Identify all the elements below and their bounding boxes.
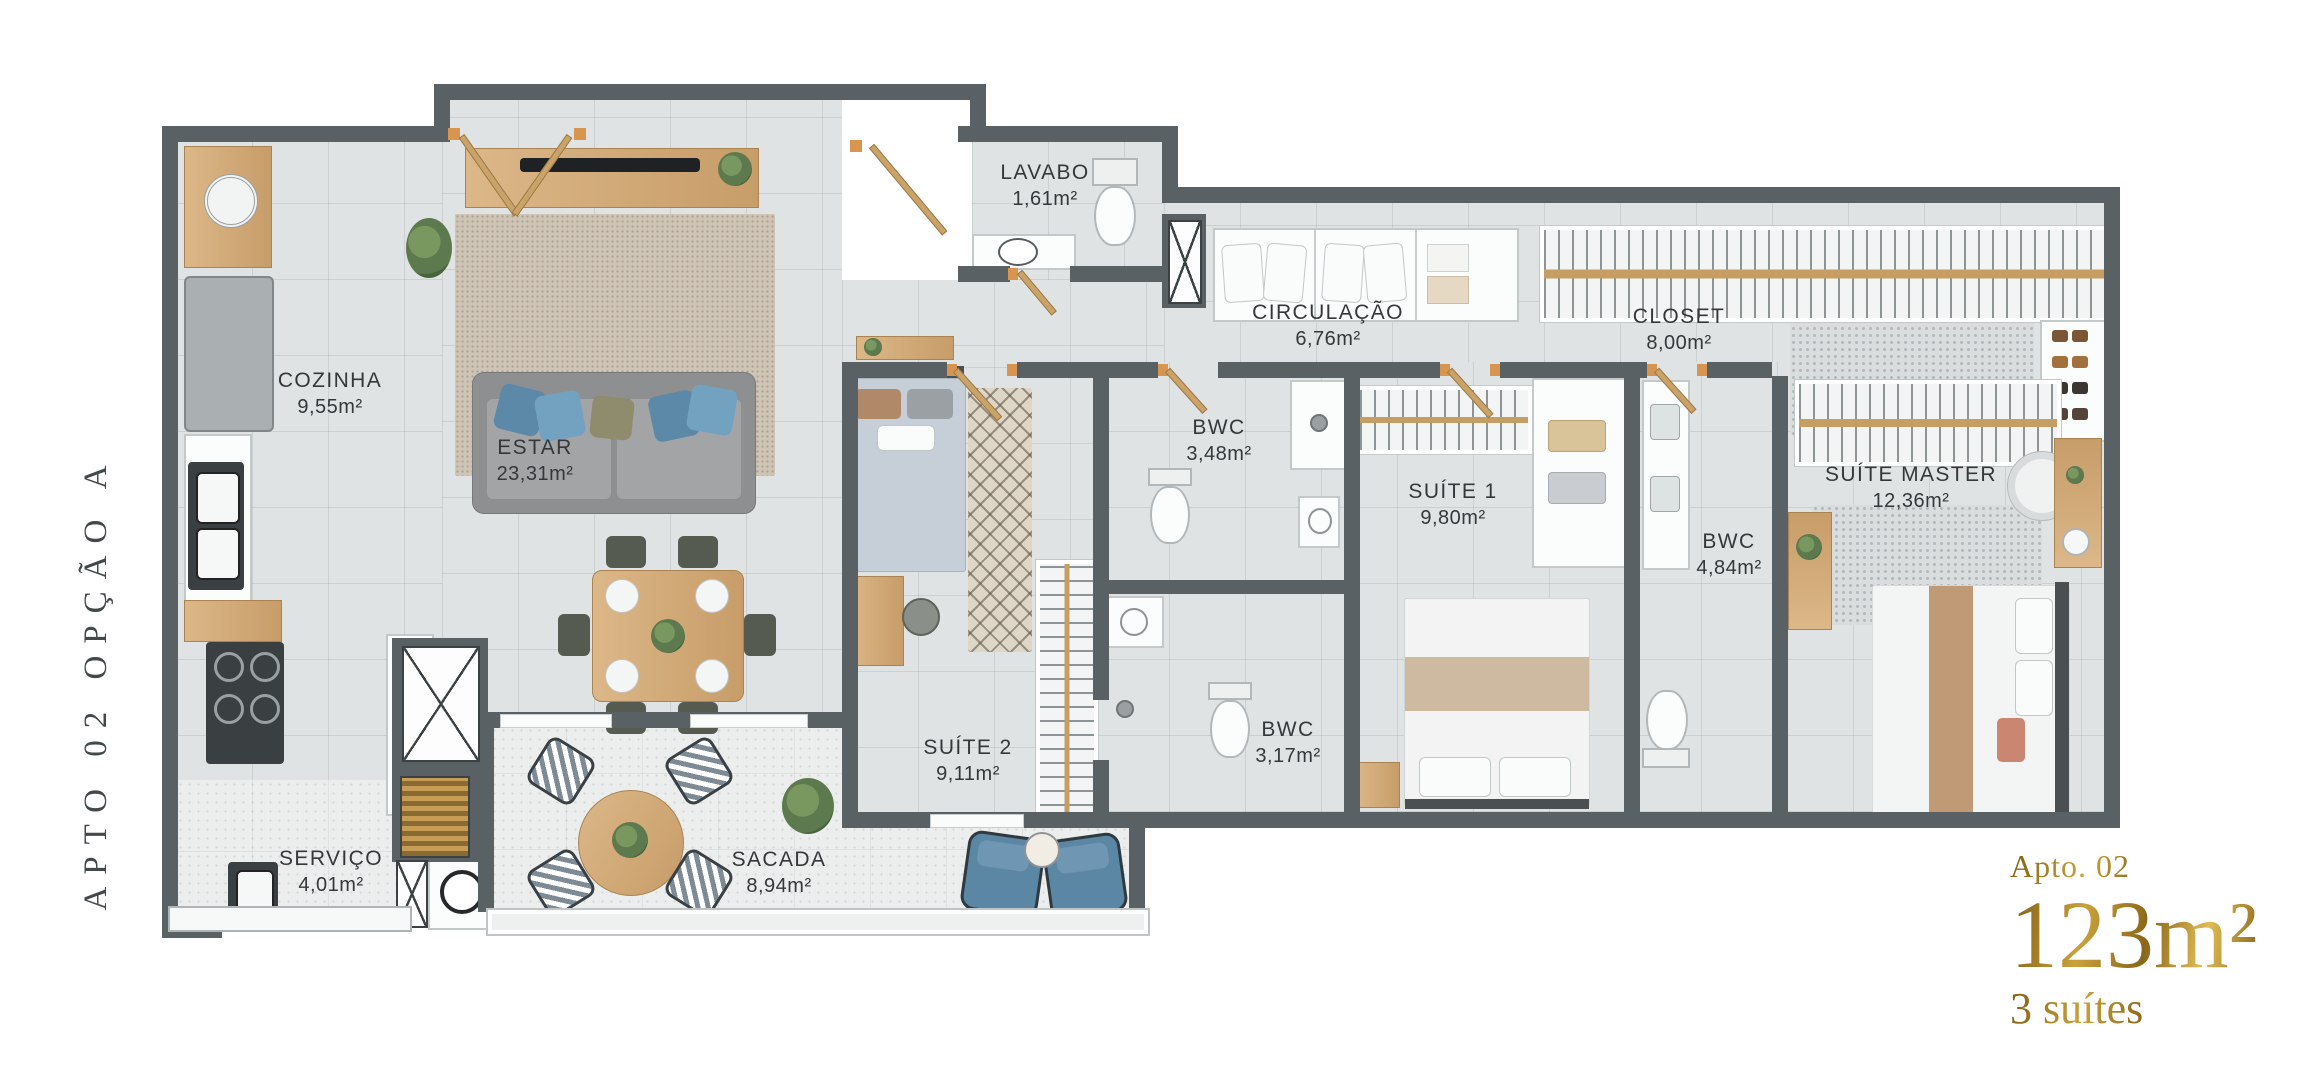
dining-chair: [558, 614, 590, 656]
cushion: [685, 383, 738, 436]
side-title: APTO 02 OPÇÃO A: [71, 372, 121, 992]
plant: [1796, 534, 1822, 560]
apartment-suites: 3 suítes: [2010, 983, 2257, 1034]
room-label-bwc-317: BWC3,17m²: [1255, 718, 1320, 768]
dining-chair: [744, 614, 776, 656]
balcony-railing: [486, 908, 1150, 936]
room-label-suite2: SUÍTE 29,11m²: [923, 736, 1012, 786]
sliding-door-track: [930, 814, 1024, 828]
room-label-bwc-348: BWC3,48m²: [1186, 416, 1251, 466]
apartment-number: Apto. 02: [2010, 848, 2257, 885]
plant: [864, 338, 882, 356]
apartment-area: 123m²: [2010, 887, 2257, 983]
double-vanity: [1642, 380, 1690, 570]
servico-window: [168, 906, 412, 932]
toilet-tank: [1642, 748, 1690, 768]
cushion: [533, 389, 586, 442]
toilet: [1150, 486, 1190, 544]
room-label-sacada: SACADA8,94m²: [732, 848, 827, 898]
apartment-summary: Apto. 02 123m² 3 suítes: [2010, 848, 2257, 1034]
entry-shelf: [1788, 512, 1832, 630]
toilet: [1210, 700, 1250, 758]
main-entry-door: [869, 144, 948, 236]
kitchen-counter-wood: [184, 600, 282, 642]
kitchen-sink: [188, 462, 244, 590]
nightstand: [1356, 762, 1400, 808]
shower-head-icon: [1310, 414, 1328, 432]
suite1-wardrobe: [1356, 386, 1532, 454]
closet-rack: [1540, 226, 2108, 322]
lamp: [2062, 528, 2090, 556]
toilet-tank: [1148, 468, 1192, 486]
decor-plate: [204, 174, 258, 228]
plant: [612, 822, 648, 858]
shower-head-icon: [1116, 700, 1134, 718]
sliding-door-track: [500, 714, 612, 728]
toilet-tank: [1208, 682, 1252, 700]
sliding-door-track: [690, 714, 808, 728]
lavabo-toilet-tank: [1092, 158, 1138, 186]
closet-rack-2: [1795, 380, 2061, 466]
sink: [1298, 496, 1340, 548]
dining-chair: [678, 536, 718, 568]
dining-table: [592, 570, 744, 702]
room-label-closet: CLOSET8,00m²: [1633, 305, 1725, 355]
stove: [206, 642, 284, 764]
suite2-rug: [968, 388, 1032, 652]
entry-duct: [1168, 220, 1202, 304]
toilet: [1646, 690, 1688, 750]
lavabo-basin: [998, 238, 1038, 266]
room-label-estar: ESTAR23,31m²: [497, 436, 574, 486]
suite2-wardrobe: [1036, 560, 1098, 824]
room-label-servico: SERVIÇO4,01m²: [279, 847, 383, 897]
room-label-lavabo: LAVABO1,61m²: [1000, 161, 1089, 211]
suite2-bed: [848, 378, 966, 572]
dining-chair: [606, 536, 646, 568]
suite1-shelf: [1532, 378, 1628, 568]
plant: [406, 218, 452, 278]
room-label-circulacao: CIRCULAÇÃO6,76m²: [1252, 301, 1404, 351]
shaft-duct: [402, 646, 480, 762]
room-label-suite1: SUÍTE 19,80m²: [1408, 480, 1497, 530]
lavabo-toilet: [1094, 186, 1136, 246]
cushion: [589, 395, 635, 441]
fridge: [184, 276, 274, 432]
room-label-suite-master: SUÍTE MASTER12,36m²: [1825, 463, 1997, 513]
desk-chair: [902, 598, 940, 636]
room-label-bwc-484: BWC4,84m²: [1696, 530, 1761, 580]
vanity: [1102, 596, 1164, 648]
side-table: [1024, 832, 1060, 868]
master-bed: [1872, 585, 2070, 814]
plant: [718, 152, 752, 186]
floor-plan: APTO 02 OPÇÃO A: [0, 0, 2315, 1080]
suite1-bed: [1404, 598, 1590, 806]
barbecue-grill: [400, 776, 470, 858]
room-label-cozinha: COZINHA9,55m²: [278, 369, 382, 419]
plant: [782, 778, 834, 834]
plant: [2066, 466, 2084, 484]
